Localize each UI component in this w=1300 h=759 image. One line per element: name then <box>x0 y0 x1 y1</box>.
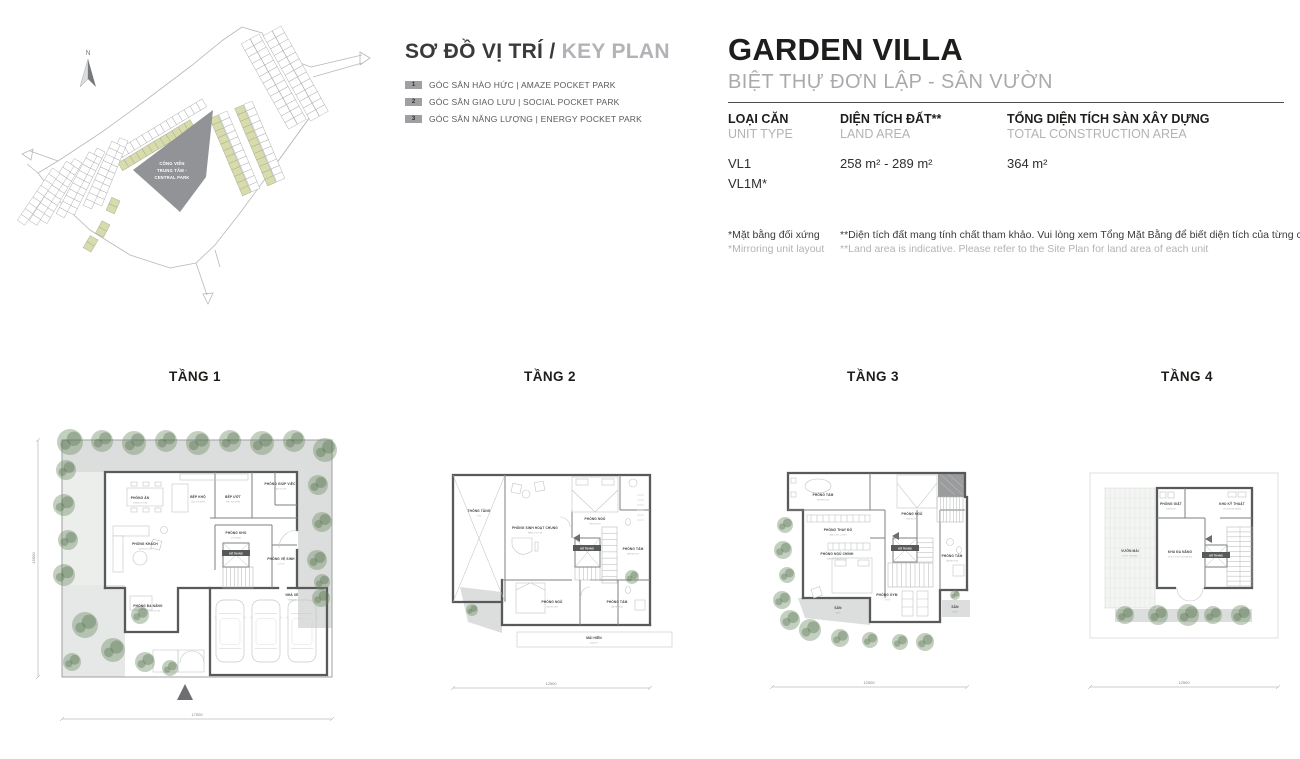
svg-text:TRUNG TÂM -: TRUNG TÂM - <box>157 168 187 173</box>
svg-text:LAUNDRY: LAUNDRY <box>1166 508 1177 511</box>
svg-text:BEDROOM: BEDROOM <box>547 607 558 609</box>
legend-label: GÓC SÂN HÀO HỨC | AMAZE POCKET PARK <box>429 80 616 90</box>
legend-number-badge: 2 <box>405 98 422 106</box>
key-plan-map: N <box>10 5 390 310</box>
land-area-value: 258 m² - 289 m² <box>840 154 941 174</box>
svg-text:SÂN: SÂN <box>834 605 842 610</box>
svg-text:LIVING ROOM: LIVING ROOM <box>138 549 152 551</box>
svg-text:15000: 15000 <box>31 552 36 564</box>
svg-text:MAID ROOM: MAID ROOM <box>274 488 287 491</box>
roof-garden <box>1105 488 1155 608</box>
floor-plan-1: HỐ THANG PHÒNG ĂNDINING ROOM BẾP KHÔDRY … <box>30 410 370 755</box>
unit-type-column: LOẠI CĂN UNIT TYPE VL1VL1M* <box>728 112 793 194</box>
svg-text:WALK-IN CLOSET: WALK-IN CLOSET <box>829 534 847 537</box>
elevator: HỐ THANG <box>573 538 601 567</box>
floor-3-title: TẦNG 3 <box>808 369 938 384</box>
svg-text:KHU ĐA NĂNG: KHU ĐA NĂNG <box>1168 549 1193 554</box>
construction-area-value: 364 m² <box>1007 154 1210 174</box>
page: N <box>0 0 1300 759</box>
svg-text:BẾP ƯỚT: BẾP ƯỚT <box>225 494 241 499</box>
svg-text:BATHROOM: BATHROOM <box>627 553 639 556</box>
svg-text:N: N <box>85 50 90 57</box>
svg-text:BATHROOM: BATHROOM <box>946 560 958 563</box>
svg-text:PHÒNG KHÁCH: PHÒNG KHÁCH <box>132 541 158 546</box>
svg-text:PHÒNG ĂN: PHÒNG ĂN <box>131 495 150 500</box>
floor-4-title: TẦNG 4 <box>1122 369 1252 384</box>
unit-header: GARDEN VILLA BIỆT THỰ ĐƠN LẬP - SÂN VƯỜN… <box>728 34 1284 269</box>
svg-text:12500: 12500 <box>545 681 557 686</box>
staircase-lower <box>575 567 600 580</box>
svg-text:PHÒNG THAY ĐỒ: PHÒNG THAY ĐỒ <box>824 527 853 532</box>
svg-text:TOILET: TOILET <box>277 564 285 566</box>
svg-text:12500: 12500 <box>863 680 875 685</box>
stair-direction-arrow <box>1205 535 1212 543</box>
entrance-arrow <box>177 684 193 700</box>
svg-text:MASTER BEDROOM: MASTER BEDROOM <box>827 558 847 561</box>
svg-text:FAMILY ROOM: FAMILY ROOM <box>528 532 543 535</box>
construction-area-column: TỔNG DIỆN TÍCH SÀN XÂY DỰNG TOTAL CONSTR… <box>1007 112 1210 174</box>
dimensions: 12500 <box>1088 680 1280 689</box>
staircase-upper <box>917 538 933 562</box>
svg-text:PHÒNG VỆ SINH: PHÒNG VỆ SINH <box>267 556 295 561</box>
stair-direction-arrow <box>573 534 580 542</box>
legend-item: 3 GÓC SÂN NĂNG LƯỢNG | ENERGY POCKET PAR… <box>405 114 715 124</box>
svg-text:YARD: YARD <box>835 612 841 615</box>
page-subtitle: BIỆT THỰ ĐƠN LẬP - SÂN VƯỜN <box>728 71 1284 94</box>
svg-text:DRY KITCHEN: DRY KITCHEN <box>191 502 206 504</box>
void-area <box>453 475 505 602</box>
svg-text:GARAGE: GARAGE <box>288 599 298 602</box>
dimensions: 12500 <box>770 680 969 689</box>
unit-type-value: VL1M* <box>728 174 793 194</box>
svg-text:SÂN: SÂN <box>951 604 959 609</box>
footnote-land-area: **Diện tích đất mang tính chất tham khảo… <box>840 229 1284 255</box>
svg-text:KHU KỸ THUẬT: KHU KỸ THUẬT <box>1219 501 1245 506</box>
svg-text:17000: 17000 <box>191 712 203 717</box>
svg-text:PHÒNG TẮM: PHÒNG TẮM <box>607 599 628 604</box>
svg-text:PHÒNG GIÚP VIỆC: PHÒNG GIÚP VIỆC <box>265 481 296 486</box>
page-title: GARDEN VILLA <box>728 34 1284 67</box>
staircase <box>1227 527 1252 586</box>
floor-plan-2: HỐ THANG THÔNG TẦNGVOID PHÒNG SINH HOẠT … <box>440 450 710 705</box>
floor-plan-3: HỐ THANG PHÒNG TẮMBATHROOM PHÒNG NGỦBEDR… <box>755 450 1035 700</box>
dimensions: 12500 <box>451 681 652 690</box>
land-area-column: DIỆN TÍCH ĐẤT** LAND AREA 258 m² - 289 m… <box>840 112 941 174</box>
legend-label: GÓC SÂN GIAO LƯU | SOCIAL POCKET PARK <box>429 97 620 107</box>
svg-text:BATHROOM: BATHROOM <box>817 499 829 502</box>
key-plan-title: SƠ ĐỒ VỊ TRÍ / KEY PLAN <box>405 40 715 64</box>
svg-text:NHÀ XE: NHÀ XE <box>286 592 299 597</box>
legend-item: 2 GÓC SÂN GIAO LƯU | SOCIAL POCKET PARK <box>405 97 715 107</box>
north-arrow-icon: N <box>80 50 96 87</box>
svg-text:GYM: GYM <box>885 600 890 602</box>
svg-text:12500: 12500 <box>1178 680 1190 685</box>
svg-text:MÁI HIÊN: MÁI HIÊN <box>586 635 602 640</box>
svg-text:PHÒNG NGỦ: PHÒNG NGỦ <box>901 511 923 516</box>
svg-text:ROOF GARDEN: ROOF GARDEN <box>1122 555 1138 558</box>
svg-text:BẾP KHÔ: BẾP KHÔ <box>190 494 206 499</box>
svg-text:PHÒNG KHO: PHÒNG KHO <box>225 530 246 535</box>
svg-text:PHÒNG NGỦ: PHÒNG NGỦ <box>541 599 563 604</box>
svg-text:CANOPY: CANOPY <box>590 642 599 645</box>
svg-text:PHÒNG TẮM: PHÒNG TẮM <box>813 492 834 497</box>
header-divider <box>728 102 1284 103</box>
legend-label: GÓC SÂN NĂNG LƯỢNG | ENERGY POCKET PARK <box>429 114 642 124</box>
legend-number-badge: 3 <box>405 115 422 123</box>
floor-2-title: TẦNG 2 <box>485 369 615 384</box>
svg-text:CÔNG VIÊN: CÔNG VIÊN <box>159 161 184 166</box>
svg-text:VƯỜN MÁI: VƯỜN MÁI <box>1121 548 1139 553</box>
elevator: HỐ THANG <box>222 543 250 567</box>
svg-text:STORAGE: STORAGE <box>231 537 242 540</box>
svg-text:VOID: VOID <box>476 516 482 518</box>
floor-1-title: TẦNG 1 <box>130 369 260 384</box>
elevator: HỐ THANG <box>891 538 919 562</box>
staircase <box>223 567 253 588</box>
svg-text:PHÒNG TẮM: PHÒNG TẮM <box>623 546 644 551</box>
staircase <box>888 563 933 587</box>
svg-text:TECHNICAL AREA: TECHNICAL AREA <box>1223 508 1241 511</box>
furniture <box>1160 492 1246 498</box>
svg-text:PHÒNG NGỦ: PHÒNG NGỦ <box>584 516 606 521</box>
footnote-mirroring: *Mặt bằng đối xứng *Mirroring unit layou… <box>728 229 824 255</box>
svg-text:PHÒNG NGỦ CHÍNH: PHÒNG NGỦ CHÍNH <box>821 551 854 556</box>
svg-text:THÔNG TẦNG: THÔNG TẦNG <box>468 508 491 513</box>
svg-text:PHÒNG GIẶT: PHÒNG GIẶT <box>1160 501 1182 506</box>
svg-text:BEDROOM: BEDROOM <box>590 524 601 526</box>
elevator: HỐ THANG <box>1202 545 1230 567</box>
staircase <box>602 527 617 583</box>
svg-text:CENTRAL PARK: CENTRAL PARK <box>154 175 189 180</box>
svg-text:BATHROOM: BATHROOM <box>611 606 623 609</box>
svg-text:MULTI-FUNCTION AREA: MULTI-FUNCTION AREA <box>1168 556 1192 559</box>
svg-text:PHÒNG SINH HOẠT CHUNG: PHÒNG SINH HOẠT CHUNG <box>512 525 558 530</box>
legend-number-badge: 1 <box>405 81 422 89</box>
legend-item: 1 GÓC SÂN HÀO HỨC | AMAZE POCKET PARK <box>405 80 715 90</box>
svg-text:WET KITCHEN: WET KITCHEN <box>226 502 241 504</box>
floor-plan-4: HỐ THANG VƯỜN MÁIROOF GARDEN PHÒNG GIẶTL… <box>1080 460 1300 695</box>
unit-type-value: VL1 <box>728 154 793 174</box>
svg-text:PHÒNG TẮM: PHÒNG TẮM <box>942 553 963 558</box>
svg-text:YARD: YARD <box>952 611 958 614</box>
svg-text:DINING ROOM: DINING ROOM <box>133 503 148 505</box>
svg-text:PHÒNG ĐA NĂNG: PHÒNG ĐA NĂNG <box>133 603 163 608</box>
plot-strips <box>17 26 328 252</box>
key-plan-legend: SƠ ĐỒ VỊ TRÍ / KEY PLAN 1 GÓC SÂN HÀO HỨ… <box>405 40 715 131</box>
svg-text:MULTI-FUNCTION ROOM: MULTI-FUNCTION ROOM <box>136 611 161 613</box>
svg-text:PHÒNG GYM: PHÒNG GYM <box>876 592 897 597</box>
svg-text:BEDROOM: BEDROOM <box>907 519 918 521</box>
